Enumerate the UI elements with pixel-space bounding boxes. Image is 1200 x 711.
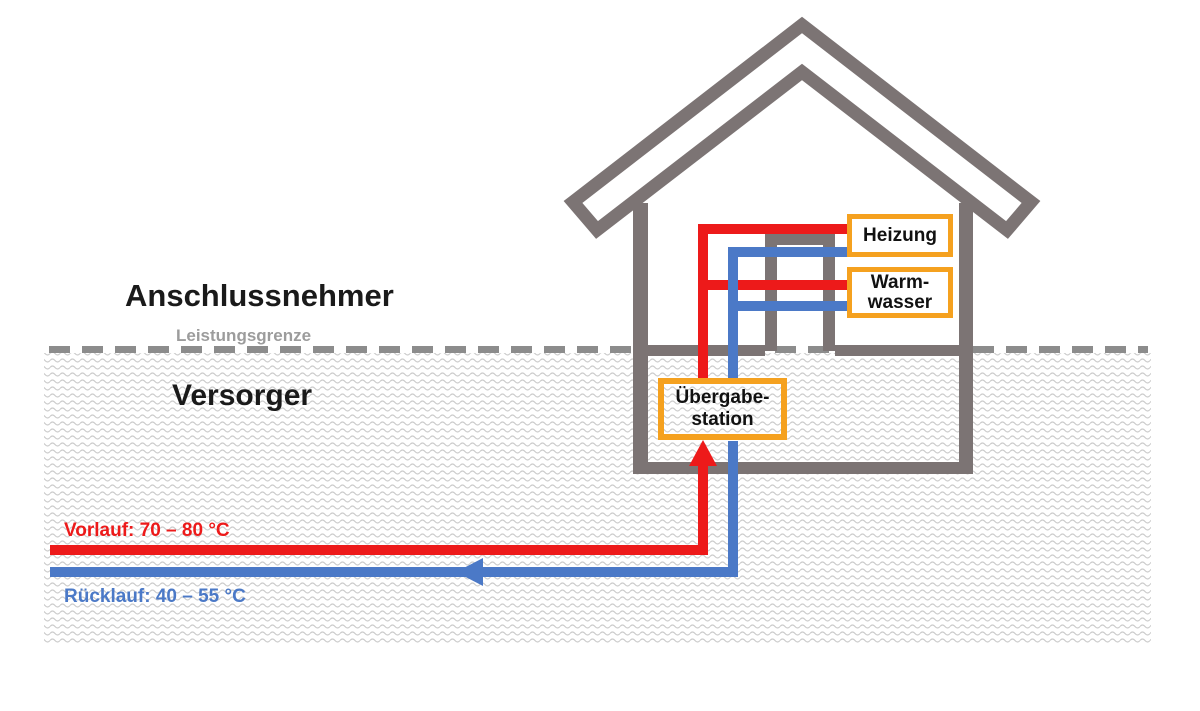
warmwasser-box-label-line2: wasser <box>868 293 932 313</box>
district-heating-diagram: Anschlussnehmer Leistungsgrenze Versorge… <box>0 0 1200 711</box>
warmwasser-box-label-line1: Warm- <box>871 273 929 293</box>
right-wall <box>959 203 973 474</box>
zone-label-versorger: Versorger <box>172 381 312 411</box>
roof <box>573 25 1031 230</box>
left-wall <box>633 203 648 474</box>
uebergabestation-label-line2: station <box>691 409 753 431</box>
uebergabestation-label-line1: Übergabe- <box>676 387 770 409</box>
ruecklauf-temperature-label: Rücklauf: 40 – 55 °C <box>64 587 246 606</box>
heizung-box: Heizung <box>847 214 953 257</box>
warmwasser-box: Warm- wasser <box>847 267 953 318</box>
vorlauf-temperature-label: Vorlauf: 70 – 80 °C <box>64 521 230 540</box>
zone-label-anschlussnehmer: Anschlussnehmer <box>125 280 394 311</box>
heizung-box-label: Heizung <box>863 225 937 247</box>
basement-bottom <box>633 462 973 474</box>
uebergabestation-box: Übergabe- station <box>658 378 787 440</box>
floor-right <box>835 345 973 356</box>
zone-label-leistungsgrenze: Leistungsgrenze <box>176 327 311 344</box>
